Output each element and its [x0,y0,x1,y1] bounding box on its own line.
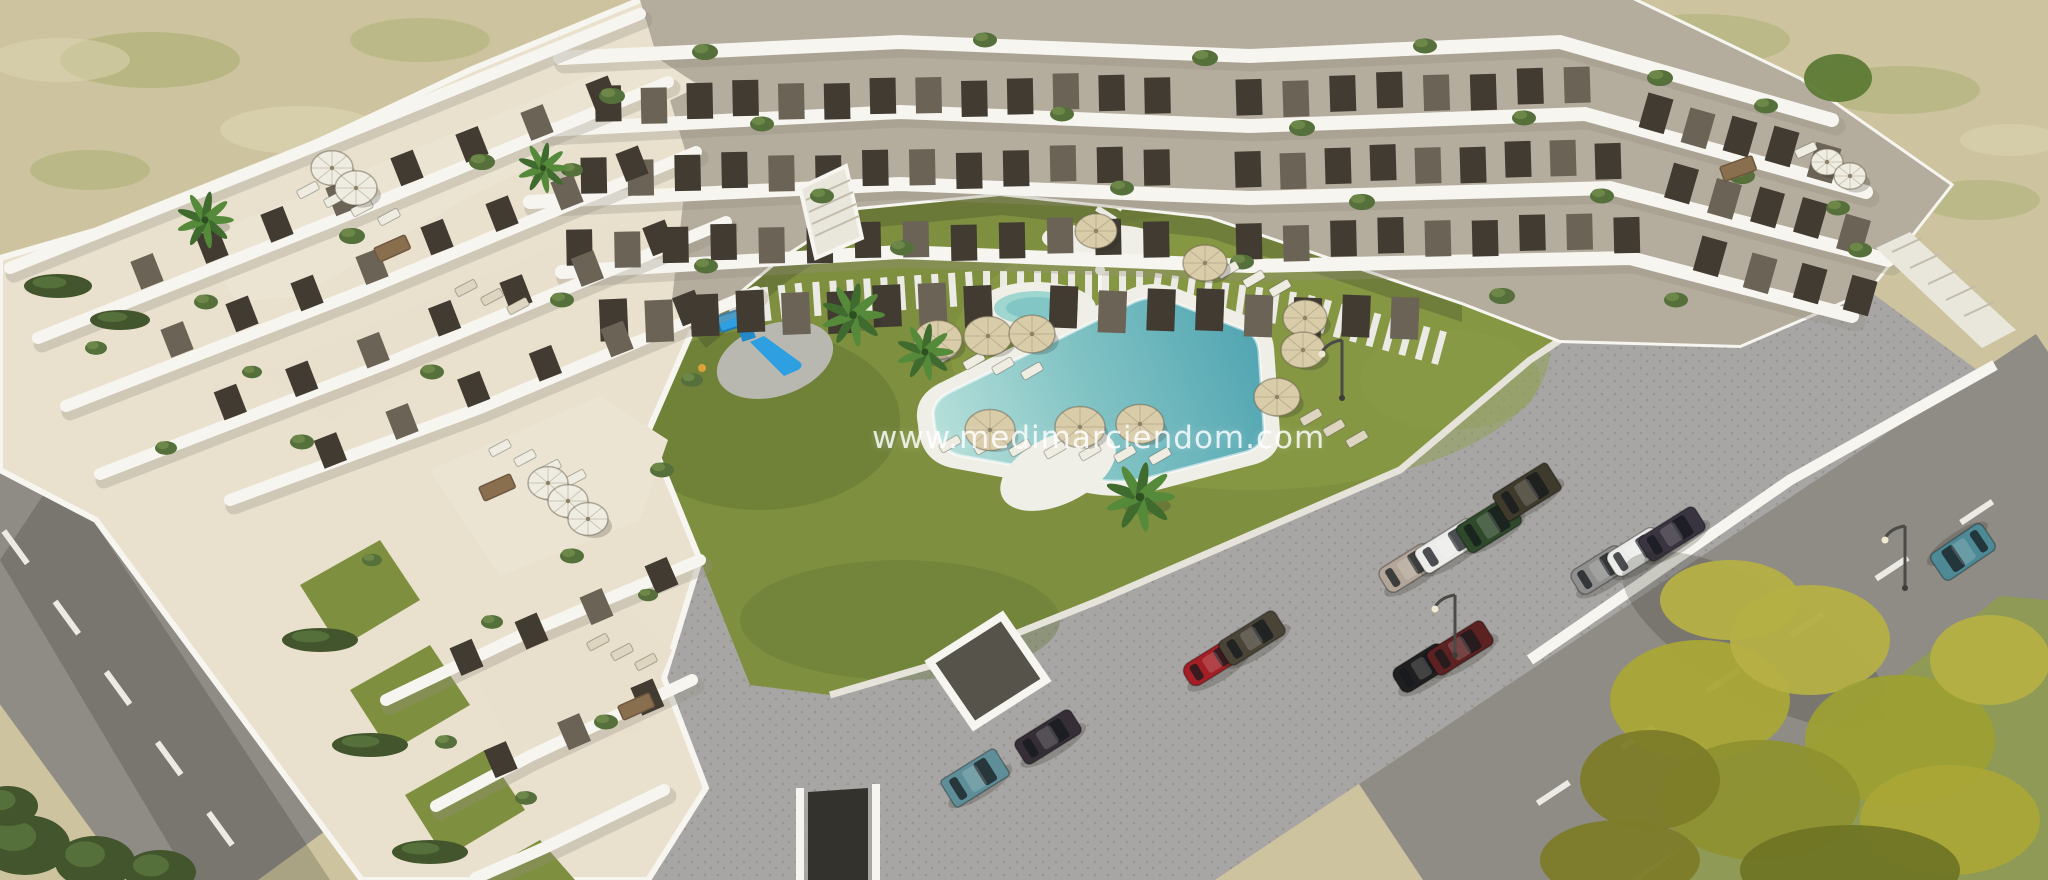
aerial-render-photo: www.medimarciendom.com [0,0,2048,880]
scene-canvas [0,0,2048,880]
spring-toy [698,364,706,372]
garage-ramp [800,784,876,880]
